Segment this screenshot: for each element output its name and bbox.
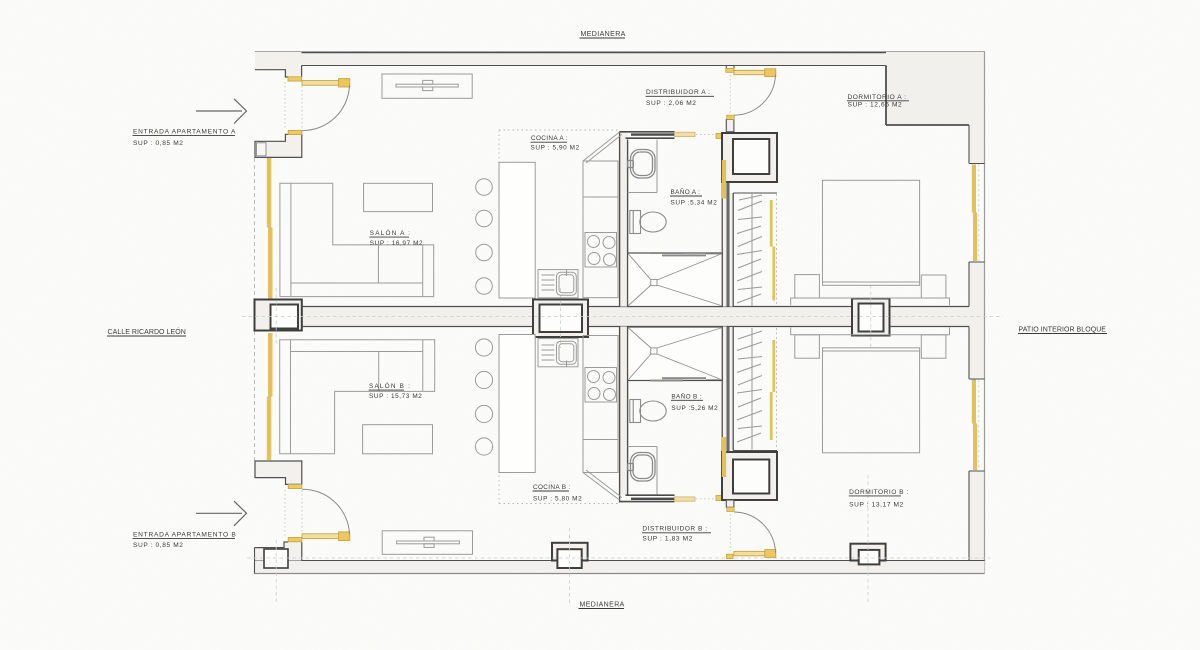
svg-text:ENTRADA APARTAMENTO A: ENTRADA APARTAMENTO A: [133, 128, 236, 135]
svg-text:BAÑO A :: BAÑO A :: [671, 187, 701, 196]
svg-text:SUP : 13,17 M2: SUP : 13,17 M2: [849, 501, 904, 508]
svg-text:MEDIANERA: MEDIANERA: [580, 602, 625, 609]
svg-text:SUP : 12,65 M2: SUP : 12,65 M2: [848, 101, 903, 108]
svg-text:SUP :5,34 M2: SUP :5,34 M2: [671, 200, 718, 207]
svg-text:COCINA A :: COCINA A :: [531, 135, 568, 142]
svg-text:MEDIANERA: MEDIANERA: [581, 31, 626, 38]
svg-text:SALÓN B :: SALÓN B :: [369, 381, 411, 390]
svg-text:SUP : 2,06 M2: SUP : 2,06 M2: [646, 100, 697, 107]
svg-text:SUP : 0,85 M2: SUP : 0,85 M2: [133, 140, 184, 147]
svg-text:BAÑO B :: BAÑO B :: [671, 391, 702, 400]
svg-text:DORMITORIO A :: DORMITORIO A :: [848, 94, 907, 101]
svg-text:ENTRADA APARTAMENTO B: ENTRADA APARTAMENTO B: [133, 531, 237, 538]
svg-text:DISTRIBUIDOR A :: DISTRIBUIDOR A :: [646, 89, 710, 96]
svg-text:SALÓN A :: SALÓN A :: [370, 228, 411, 237]
svg-text:SUP : 16,97 M2: SUP : 16,97 M2: [370, 240, 423, 247]
svg-text:SUP : 5,80 M2: SUP : 5,80 M2: [533, 496, 582, 503]
svg-text:SUP : 1,83 M2: SUP : 1,83 M2: [642, 535, 693, 542]
svg-text:DORMITORIO B :: DORMITORIO B :: [849, 489, 909, 496]
svg-text:SUP :5,26 M2: SUP :5,26 M2: [671, 405, 718, 412]
svg-text:SUP : 15,73 M2: SUP : 15,73 M2: [369, 393, 422, 400]
svg-text:CALLE RICARDO LEÓN: CALLE RICARDO LEÓN: [108, 327, 186, 336]
svg-text:COCINA B :: COCINA B :: [533, 484, 571, 491]
svg-text:PATIO INTERIOR BLOQUE: PATIO INTERIOR BLOQUE: [1019, 327, 1107, 334]
svg-text:SUP : 5,90 M2: SUP : 5,90 M2: [531, 145, 580, 152]
svg-text:DISTRIBUIDOR B :: DISTRIBUIDOR B :: [642, 526, 707, 533]
svg-text:SUP : 0,85 M2: SUP : 0,85 M2: [133, 542, 184, 549]
